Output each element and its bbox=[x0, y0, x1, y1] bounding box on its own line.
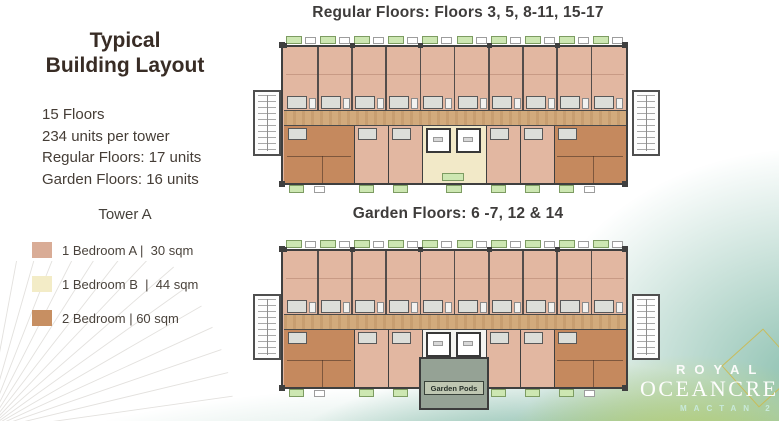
kitchen-fixture bbox=[616, 302, 623, 313]
building-stats: 15 Floors 234 units per tower Regular Fl… bbox=[42, 104, 201, 190]
corner-post bbox=[279, 385, 285, 391]
bathroom-fixture bbox=[389, 96, 409, 109]
stat-units-per-tower: 234 units per tower bbox=[42, 126, 201, 148]
unit-divider bbox=[351, 251, 353, 314]
page-title-line2: Building Layout bbox=[0, 53, 250, 78]
logo-oceancrest-text: OCEANCREST bbox=[640, 376, 779, 402]
balcony-chip bbox=[359, 389, 374, 397]
corner-post bbox=[622, 181, 628, 187]
bathroom-fixture bbox=[288, 128, 307, 140]
unit-divider bbox=[556, 251, 558, 314]
stair-divider bbox=[646, 95, 647, 151]
balcony-chip bbox=[286, 240, 302, 248]
balcony-chip bbox=[320, 240, 336, 248]
unit-divider bbox=[522, 251, 524, 314]
corner-post bbox=[279, 42, 285, 48]
kitchen-fixture bbox=[309, 302, 316, 313]
bathroom-fixture bbox=[392, 128, 411, 140]
bathroom-fixture bbox=[524, 332, 543, 344]
window-chip bbox=[373, 37, 384, 44]
elevator bbox=[456, 128, 481, 153]
legend-item-2bedroom: 2 Bedroom | 60 sqm bbox=[32, 309, 179, 327]
window-chip bbox=[510, 241, 521, 248]
unit-divider bbox=[385, 251, 387, 314]
kitchen-fixture bbox=[582, 98, 589, 109]
window-chip bbox=[544, 37, 555, 44]
stat-regular-floors: Regular Floors: 17 units bbox=[42, 147, 201, 169]
window-chip bbox=[407, 37, 418, 44]
unit-divider bbox=[420, 251, 422, 314]
unit-divider bbox=[591, 47, 593, 110]
kitchen-fixture bbox=[445, 98, 452, 109]
kitchen-fixture bbox=[514, 302, 521, 313]
unit-divider bbox=[488, 47, 490, 110]
window-chip bbox=[476, 37, 487, 44]
kitchen-fixture bbox=[616, 98, 623, 109]
stair-divider bbox=[267, 95, 268, 151]
stairwell-right bbox=[632, 90, 660, 156]
bathroom-fixture bbox=[355, 96, 375, 109]
unit-divider bbox=[454, 47, 456, 110]
window-chip bbox=[441, 241, 452, 248]
bathroom-fixture bbox=[321, 300, 341, 313]
bathroom-fixture bbox=[458, 96, 478, 109]
window-chip bbox=[584, 186, 595, 193]
kitchen-fixture bbox=[377, 302, 384, 313]
balcony-chip bbox=[525, 240, 541, 248]
legend-swatch-1bedroom-b bbox=[32, 276, 52, 292]
bathroom-fixture bbox=[526, 96, 546, 109]
corner-post bbox=[279, 181, 285, 187]
balcony-chip bbox=[491, 389, 506, 397]
window-chip bbox=[339, 37, 350, 44]
legend-label-1bedroom-b: 1 Bedroom B | 44 sqm bbox=[62, 277, 198, 292]
wall-post bbox=[350, 43, 355, 48]
bathroom-fixture bbox=[526, 300, 546, 313]
window-chip bbox=[578, 37, 589, 44]
balcony-chip bbox=[559, 185, 574, 193]
unit-divider bbox=[591, 251, 593, 314]
wall-post bbox=[350, 247, 355, 252]
stair-divider bbox=[267, 299, 268, 355]
page-title: Typical Building Layout bbox=[0, 28, 250, 78]
room-divider bbox=[287, 156, 351, 157]
corner-post bbox=[279, 246, 285, 252]
balcony-chip bbox=[286, 36, 302, 44]
balcony-chip bbox=[593, 36, 609, 44]
window-chip bbox=[476, 241, 487, 248]
window-chip bbox=[305, 241, 316, 248]
bathroom-fixture bbox=[355, 300, 375, 313]
balcony-chip bbox=[289, 185, 304, 193]
balcony-chip bbox=[359, 185, 374, 193]
kitchen-fixture bbox=[411, 98, 418, 109]
room-divider bbox=[557, 156, 623, 157]
garden-floors-section: Garden Floors: 6 -7, 12 & 14 Garden Pods bbox=[253, 205, 663, 417]
kitchen-fixture bbox=[480, 98, 487, 109]
bathroom-fixture bbox=[558, 128, 577, 140]
kitchen-fixture bbox=[343, 98, 350, 109]
bathroom-fixture bbox=[458, 300, 478, 313]
balcony-chip bbox=[354, 36, 370, 44]
bathroom-fixture bbox=[423, 96, 443, 109]
unit-divider bbox=[420, 47, 422, 110]
garden-floors-title: Garden Floors: 6 -7, 12 & 14 bbox=[253, 205, 663, 223]
bathroom-fixture bbox=[594, 96, 614, 109]
legend-swatch-1bedroom-a bbox=[32, 242, 52, 258]
stat-floors: 15 Floors bbox=[42, 104, 201, 126]
bathroom-fixture bbox=[560, 96, 580, 109]
balcony-chip bbox=[559, 36, 575, 44]
bathroom-fixture bbox=[594, 300, 614, 313]
balcony-chip bbox=[491, 185, 506, 193]
corner-post bbox=[622, 385, 628, 391]
room-divider bbox=[287, 360, 351, 361]
room-divider bbox=[557, 360, 623, 361]
elevator bbox=[456, 332, 481, 357]
unit-divider bbox=[454, 251, 456, 314]
corner-post bbox=[622, 246, 628, 252]
balcony-chip bbox=[393, 389, 408, 397]
elevator bbox=[426, 332, 451, 357]
unit-divider bbox=[522, 47, 524, 110]
window-chip bbox=[584, 390, 595, 397]
window-chip bbox=[441, 37, 452, 44]
elevator-cab-mark bbox=[463, 341, 473, 346]
stat-garden-floors: Garden Floors: 16 units bbox=[42, 169, 201, 191]
wall-post bbox=[487, 43, 492, 48]
corridor bbox=[284, 314, 626, 330]
bathroom-fixture bbox=[321, 96, 341, 109]
elevator-cab-mark bbox=[433, 137, 443, 142]
window-chip bbox=[373, 241, 384, 248]
bathroom-fixture bbox=[287, 300, 307, 313]
balcony-chip bbox=[525, 36, 541, 44]
unit-divider bbox=[317, 47, 319, 110]
balcony-chip bbox=[491, 36, 507, 44]
kitchen-fixture bbox=[343, 302, 350, 313]
unit-divider bbox=[556, 47, 558, 110]
wall-post bbox=[418, 247, 423, 252]
kitchen-fixture bbox=[514, 98, 521, 109]
window-chip bbox=[510, 37, 521, 44]
logo-royal-text: ROYAL bbox=[676, 362, 765, 377]
bathroom-fixture bbox=[492, 300, 512, 313]
elevator-cab-mark bbox=[433, 341, 443, 346]
window-chip bbox=[314, 186, 325, 193]
balcony-chip bbox=[289, 389, 304, 397]
unit-divider bbox=[488, 251, 490, 314]
bathroom-fixture bbox=[358, 128, 377, 140]
balcony-chip bbox=[525, 185, 540, 193]
balcony-chip bbox=[393, 185, 408, 193]
unit-divider bbox=[351, 47, 353, 110]
legend-label-2bedroom: 2 Bedroom | 60 sqm bbox=[62, 311, 179, 326]
kitchen-fixture bbox=[411, 302, 418, 313]
bathroom-fixture bbox=[560, 300, 580, 313]
balcony-chip bbox=[388, 36, 404, 44]
room-divider bbox=[322, 360, 323, 387]
corner-post bbox=[622, 42, 628, 48]
legend-item-1bedroom-b: 1 Bedroom B | 44 sqm bbox=[32, 275, 198, 293]
room-divider bbox=[322, 156, 323, 183]
bathroom-fixture bbox=[490, 128, 509, 140]
balcony-chip bbox=[457, 36, 473, 44]
info-panel: Typical Building Layout 15 Floors 234 un… bbox=[0, 0, 250, 421]
kitchen-fixture bbox=[377, 98, 384, 109]
regular-floors-title: Regular Floors: Floors 3, 5, 8-11, 15-17 bbox=[253, 4, 663, 22]
window-chip bbox=[407, 241, 418, 248]
bathroom-fixture bbox=[558, 332, 577, 344]
balcony-chip bbox=[559, 389, 574, 397]
garden-pods-label: Garden Pods bbox=[424, 381, 484, 395]
bathroom-fixture bbox=[392, 332, 411, 344]
regular-floors-section: Regular Floors: Floors 3, 5, 8-11, 15-17 bbox=[253, 4, 663, 216]
bathroom-fixture bbox=[492, 96, 512, 109]
elevator-cab-mark bbox=[463, 137, 473, 142]
bathroom-fixture bbox=[288, 332, 307, 344]
balcony-chip bbox=[320, 36, 336, 44]
unit-divider bbox=[385, 47, 387, 110]
kitchen-fixture bbox=[548, 98, 555, 109]
bathroom-fixture bbox=[358, 332, 377, 344]
bathroom-fixture bbox=[423, 300, 443, 313]
unit-divider bbox=[317, 251, 319, 314]
bathroom-fixture bbox=[389, 300, 409, 313]
balcony-chip bbox=[422, 36, 438, 44]
window-chip bbox=[339, 241, 350, 248]
elevator bbox=[426, 128, 451, 153]
logo-mactan-text: MACTAN 2 bbox=[680, 404, 777, 413]
balcony-chip bbox=[354, 240, 370, 248]
tower-label: Tower A bbox=[0, 206, 250, 223]
room-divider bbox=[593, 156, 594, 183]
royal-oceancrest-logo: ROYAL OCEANCREST MACTAN 2 bbox=[638, 336, 779, 421]
wall-post bbox=[487, 247, 492, 252]
kitchen-fixture bbox=[480, 302, 487, 313]
bathroom-fixture bbox=[524, 128, 543, 140]
wall-post bbox=[418, 43, 423, 48]
window-chip bbox=[305, 37, 316, 44]
kitchen-fixture bbox=[548, 302, 555, 313]
balcony-chip bbox=[593, 240, 609, 248]
stairwell-left bbox=[253, 90, 281, 156]
balcony-chip bbox=[388, 240, 404, 248]
corridor bbox=[284, 110, 626, 126]
bathroom-fixture bbox=[287, 96, 307, 109]
balcony-chip bbox=[491, 240, 507, 248]
page-title-line1: Typical bbox=[0, 28, 250, 53]
legend-label-1bedroom-a: 1 Bedroom A | 30 sqm bbox=[62, 243, 193, 258]
balcony-chip bbox=[457, 240, 473, 248]
unit-chip bbox=[442, 173, 464, 181]
stairwell-left bbox=[253, 294, 281, 360]
window-chip bbox=[578, 241, 589, 248]
kitchen-fixture bbox=[309, 98, 316, 109]
balcony-chip bbox=[559, 240, 575, 248]
floorplan-garden: Garden Pods bbox=[253, 240, 663, 416]
balcony-chip bbox=[422, 240, 438, 248]
wall-post bbox=[555, 43, 560, 48]
wall-post bbox=[555, 247, 560, 252]
legend-item-1bedroom-a: 1 Bedroom A | 30 sqm bbox=[32, 241, 193, 259]
floorplan-regular bbox=[253, 36, 663, 212]
balcony-chip bbox=[525, 389, 540, 397]
bathroom-fixture bbox=[490, 332, 509, 344]
legend-swatch-2bedroom bbox=[32, 310, 52, 326]
room-divider bbox=[593, 360, 594, 387]
window-chip bbox=[544, 241, 555, 248]
kitchen-fixture bbox=[582, 302, 589, 313]
balcony-chip bbox=[446, 185, 462, 193]
kitchen-fixture bbox=[445, 302, 452, 313]
window-chip bbox=[314, 390, 325, 397]
